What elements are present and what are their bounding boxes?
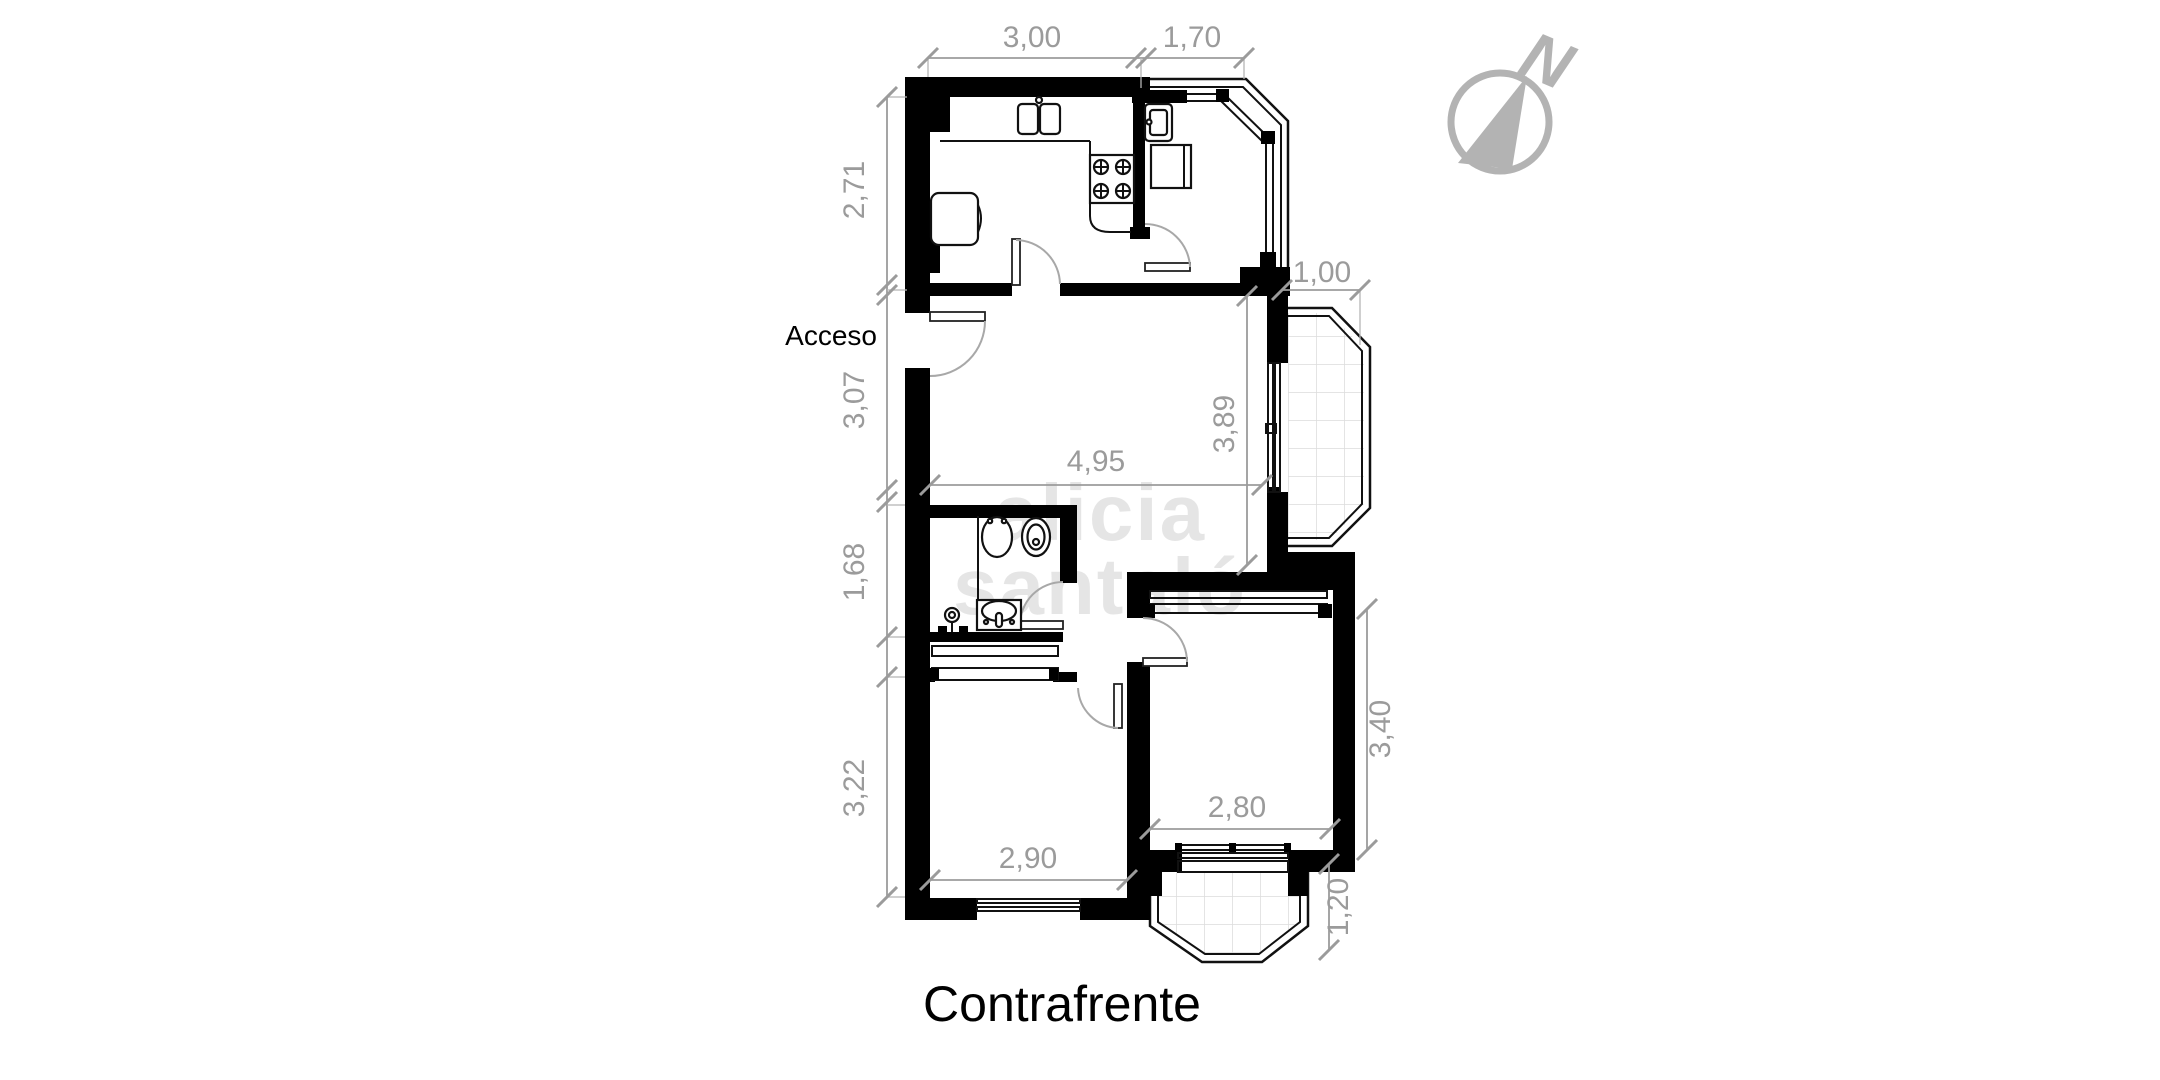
kitchen-fixtures — [931, 97, 1191, 245]
wall-right-block — [1267, 552, 1355, 572]
wall-bottom-b — [1080, 898, 1150, 920]
kitchen-sink-icon — [1018, 97, 1060, 134]
bottom-balcony — [1150, 872, 1308, 962]
wall-right-a — [1267, 296, 1288, 363]
wall-mid-b — [1127, 662, 1150, 920]
dim-bedroomL-depth: 3,22 — [838, 759, 871, 817]
north-compass-icon: N — [1451, 17, 1585, 171]
dim-bedroomL-width: 2,90 — [999, 842, 1057, 875]
stove-icon — [1090, 155, 1134, 203]
wall-bath-bottom — [905, 632, 1063, 642]
wall-left-lower — [905, 642, 930, 920]
toilet-icon — [1022, 518, 1050, 556]
wall-kitchen-a — [905, 283, 1012, 296]
bedroomL-window — [977, 899, 1080, 911]
dim-kitchen-balcony-width: 1,70 — [1163, 21, 1221, 54]
dim-kitchen-width: 3,00 — [1003, 21, 1061, 54]
bedroomL-closet — [930, 646, 1058, 680]
dim-living-height: 3,89 — [1208, 395, 1241, 453]
wall-bedroomR-bottom-b — [1288, 850, 1355, 872]
page-title: Contrafrente — [923, 976, 1201, 1032]
wall-bedroomR-top — [1127, 572, 1355, 590]
wall-bottom-a — [905, 898, 977, 920]
dim-bedroomR-depth: 3,40 — [1364, 700, 1397, 758]
wall-left-upper — [905, 97, 930, 313]
wall-stub-nub — [1130, 227, 1150, 239]
access-label: Acceso — [785, 320, 877, 351]
dim-bottom-balcony-depth: 1,20 — [1322, 878, 1355, 936]
wall-ne-block — [1240, 267, 1290, 296]
living-balcony — [1288, 308, 1370, 546]
bidet-icon — [982, 517, 1012, 557]
wall-pier-c — [1288, 872, 1308, 896]
dim-living-balcony-depth: 1,00 — [1293, 256, 1351, 289]
living-balcony-window — [1266, 363, 1280, 492]
washbasin-icon — [977, 600, 1021, 630]
wall-pier-d — [1150, 872, 1162, 896]
dim-living-width: 4,95 — [1067, 445, 1125, 478]
dim-living-left-depth: 3,07 — [838, 371, 871, 429]
nook-sink-icon — [1145, 104, 1172, 141]
wall-top — [905, 77, 1150, 97]
bedroomR-window — [1175, 843, 1291, 872]
wall-right-b — [1267, 492, 1288, 555]
kitchen-nook-door — [1145, 224, 1190, 271]
wall-nook-back — [1132, 90, 1187, 103]
dim-bathroom-depth: 1,68 — [838, 543, 871, 601]
entry-door — [930, 312, 985, 376]
wall-kitchen-b — [1060, 283, 1240, 296]
nook-counter — [1151, 145, 1191, 188]
kitchen-door — [1012, 239, 1060, 285]
dim-bedroomR-width: 2,80 — [1208, 791, 1266, 824]
wall-bath-top — [905, 505, 1077, 518]
floor-plan-canvas: alicia santaló — [0, 0, 2160, 1080]
wall-bedroomR-right — [1333, 590, 1355, 872]
refrigerator-icon — [931, 193, 981, 245]
floor-plan-drawing: alicia santaló — [0, 0, 2160, 1080]
wall-bath-right — [1060, 518, 1077, 583]
dim-kitchen-depth: 2,71 — [838, 161, 871, 219]
bedroomL-door — [1078, 684, 1122, 728]
